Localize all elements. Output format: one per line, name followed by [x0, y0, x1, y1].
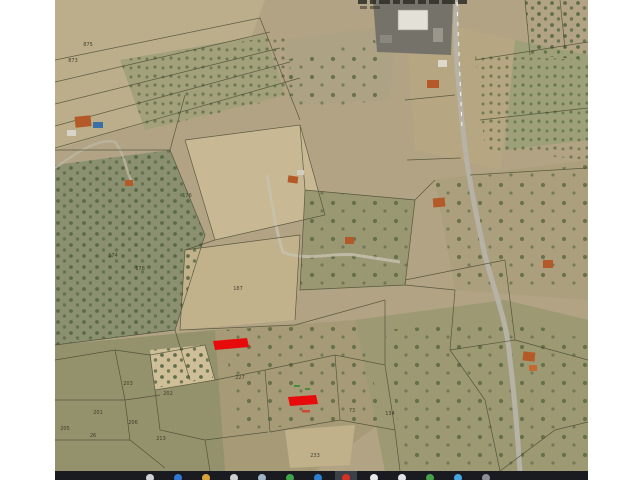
taskbar-icon-green-app[interactable]	[279, 471, 301, 480]
screen-content: 875 873 176 174 178 187 227 203 202 201 …	[55, 0, 588, 480]
cadastral-map[interactable]: 875 873 176 174 178 187 227 203 202 201 …	[55, 0, 588, 471]
parcel-label: 134	[385, 411, 395, 417]
taskbar-icon-green-app-2[interactable]	[419, 471, 441, 480]
desktop-screenshot: 875 873 176 174 178 187 227 203 202 201 …	[0, 0, 640, 480]
word-icon	[398, 474, 406, 480]
parcel-label: 875	[83, 42, 93, 48]
taskbar-icon-blue-app-3[interactable]	[447, 471, 469, 480]
parcel-label: 206	[128, 420, 138, 426]
taskbar-icon-blue-app-2[interactable]	[307, 471, 329, 480]
facility-compound	[373, 0, 453, 55]
taskbar-icon-gray-app[interactable]	[251, 471, 273, 480]
search-icon	[146, 474, 154, 480]
app-icon	[370, 474, 378, 480]
parcel-label: 203	[123, 381, 133, 387]
windows-taskbar[interactable]	[55, 471, 588, 480]
parcel-label: 227	[235, 375, 245, 381]
parcel-label: 213	[156, 436, 166, 442]
app-icon	[286, 474, 294, 480]
parcel-label: 202	[163, 391, 173, 397]
taskbar-icon-dark-app[interactable]	[363, 471, 385, 480]
parcel-label: 73	[349, 408, 355, 414]
taskbar-icon-blue-app[interactable]	[167, 471, 189, 480]
gear-icon	[482, 474, 490, 480]
map-viewport[interactable]: 875 873 176 174 178 187 227 203 202 201 …	[55, 0, 588, 471]
parcel-label: 187	[233, 286, 243, 292]
app-icon	[174, 474, 182, 480]
parcel-label: 873	[68, 58, 78, 64]
parcel-label: 178	[135, 266, 145, 272]
taskbar-icon-red-app-active[interactable]	[335, 471, 357, 480]
parcel-label: 201	[93, 410, 103, 416]
active-app-icon	[342, 474, 350, 480]
swimming-pool	[93, 122, 103, 128]
taskbar-icon-search[interactable]	[139, 471, 161, 480]
taskbar-icon-contact[interactable]	[223, 471, 245, 480]
app-icon	[426, 474, 434, 480]
folder-icon	[202, 474, 210, 480]
app-icon	[258, 474, 266, 480]
parcel-label: 176	[182, 193, 192, 199]
parcel-label: 205	[60, 426, 70, 432]
app-icon	[454, 474, 462, 480]
red-tick	[302, 410, 310, 413]
parcel-label: 26	[90, 433, 96, 439]
app-icon	[314, 474, 322, 480]
taskbar-icon-w-app[interactable]	[391, 471, 413, 480]
taskbar-icon-folder[interactable]	[195, 471, 217, 480]
parcel-label: 174	[108, 253, 118, 259]
taskbar-icon-gray-app-2[interactable]	[475, 471, 497, 480]
person-icon	[230, 474, 238, 480]
parcel-label: 233	[310, 453, 320, 459]
